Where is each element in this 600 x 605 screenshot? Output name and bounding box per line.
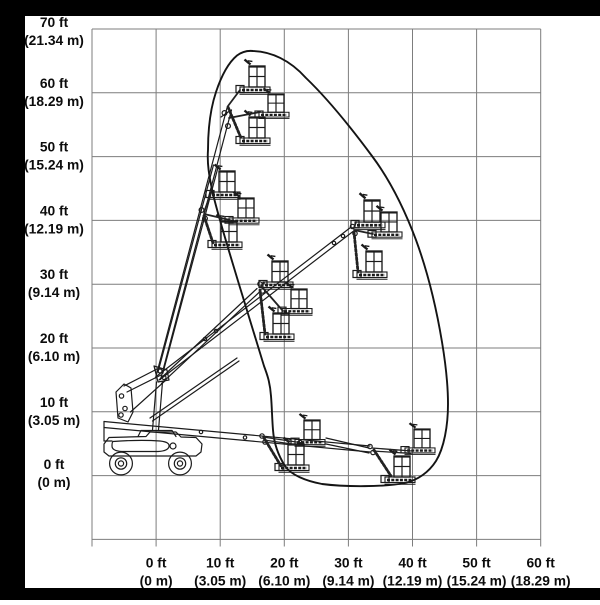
svg-text:70 ft: 70 ft	[40, 15, 69, 30]
svg-text:10 ft: 10 ft	[206, 556, 235, 571]
svg-text:50 ft: 50 ft	[462, 556, 491, 571]
svg-text:(15.24 m): (15.24 m)	[24, 158, 84, 173]
svg-text:(6.10 m): (6.10 m)	[28, 349, 80, 364]
svg-text:30 ft: 30 ft	[40, 267, 69, 282]
svg-text:(9.14 m): (9.14 m)	[322, 574, 374, 589]
svg-text:0 ft: 0 ft	[44, 457, 65, 472]
svg-text:(21.34 m): (21.34 m)	[24, 33, 84, 48]
svg-text:(6.10 m): (6.10 m)	[258, 574, 310, 589]
svg-text:40 ft: 40 ft	[398, 556, 427, 571]
svg-text:(3.05 m): (3.05 m)	[28, 413, 80, 428]
svg-text:60 ft: 60 ft	[40, 76, 69, 91]
svg-text:(12.19 m): (12.19 m)	[24, 221, 84, 236]
svg-text:40 ft: 40 ft	[40, 203, 69, 218]
svg-text:(0 m): (0 m)	[38, 475, 71, 490]
svg-text:10 ft: 10 ft	[40, 395, 69, 410]
svg-text:(3.05 m): (3.05 m)	[194, 574, 246, 589]
svg-text:(18.29 m): (18.29 m)	[24, 94, 84, 109]
svg-text:20 ft: 20 ft	[270, 556, 299, 571]
svg-text:(0 m): (0 m)	[140, 574, 173, 589]
svg-text:60 ft: 60 ft	[527, 556, 556, 571]
svg-text:(12.19 m): (12.19 m)	[383, 574, 443, 589]
svg-text:(15.24 m): (15.24 m)	[447, 574, 507, 589]
svg-text:0 ft: 0 ft	[146, 556, 167, 571]
svg-text:50 ft: 50 ft	[40, 140, 69, 155]
svg-text:(18.29 m): (18.29 m)	[511, 574, 571, 589]
svg-text:(9.14 m): (9.14 m)	[28, 285, 80, 300]
svg-text:30 ft: 30 ft	[334, 556, 363, 571]
svg-text:20 ft: 20 ft	[40, 331, 69, 346]
